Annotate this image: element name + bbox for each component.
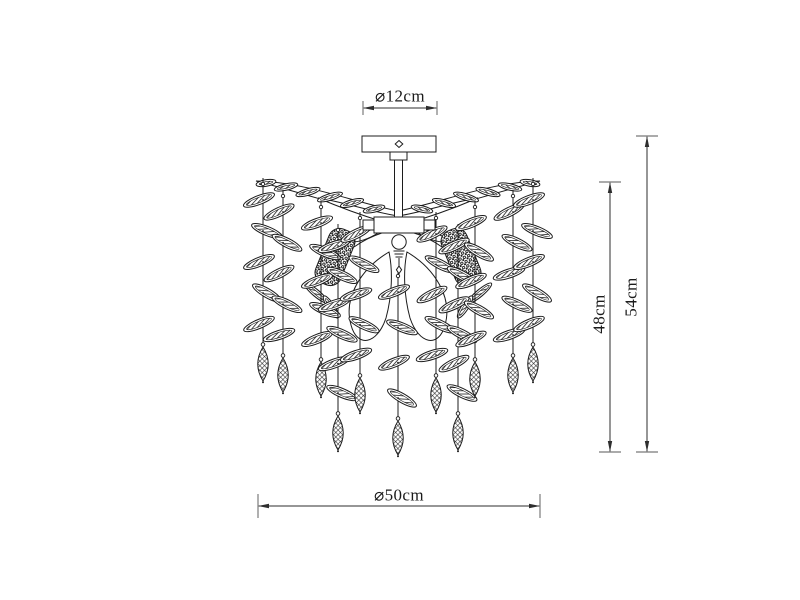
dim-label-spread-diameter: ⌀50cm	[374, 487, 424, 504]
marquise-pendant	[431, 378, 442, 412]
left-branch	[256, 178, 398, 340]
chandelier-group	[242, 136, 554, 457]
crystal-strand	[339, 212, 381, 414]
dim-label-drop-height: 48cm	[591, 294, 608, 333]
marquise-pendant	[453, 416, 464, 450]
technical-drawing-canvas: ⌀12cm 48cm 54cm ⌀50cm	[0, 0, 800, 600]
dim-label-canopy-diameter: ⌀12cm	[375, 88, 425, 105]
marquise-pendant	[508, 358, 519, 392]
lamp-socket	[392, 235, 406, 249]
dim-label-total-height: 54cm	[623, 277, 640, 316]
marquise-pendant	[528, 347, 539, 381]
marquise-pendant	[393, 421, 404, 455]
marquise-pendant	[333, 416, 344, 450]
marquise-pendant	[258, 347, 269, 381]
hub	[374, 217, 424, 233]
marquise-pendant	[355, 378, 366, 412]
crystal-strand	[377, 270, 419, 457]
marquise-pendant	[278, 358, 289, 392]
marquise-pendant	[470, 362, 481, 396]
stem	[395, 160, 403, 218]
